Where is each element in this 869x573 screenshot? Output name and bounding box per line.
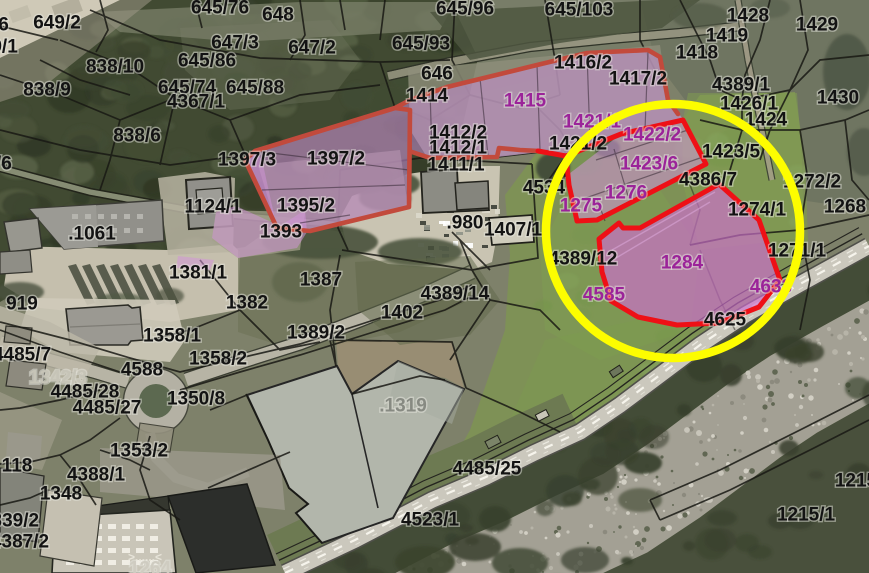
svg-text:1276: 1276 [605,183,647,204]
svg-text:.980: .980 [447,213,484,234]
svg-text:836/6: 836/6 [0,154,12,175]
svg-text:1414: 1414 [406,86,449,107]
svg-text:649/2: 649/2 [33,13,81,34]
svg-text:1417/2: 1417/2 [609,69,667,90]
svg-text:.1061: .1061 [68,224,116,245]
svg-text:919: 919 [6,294,38,315]
svg-text:1402: 1402 [381,303,423,324]
svg-text:1416/2: 1416/2 [554,53,612,74]
svg-text:645/93: 645/93 [392,34,450,55]
svg-text:1428: 1428 [727,6,769,27]
svg-text:4388/1: 4388/1 [67,465,126,486]
svg-text:645/88: 645/88 [226,78,284,99]
svg-text:1422/2: 1422/2 [623,125,681,146]
svg-text:4485/27: 4485/27 [73,398,142,419]
svg-text:4485/25: 4485/25 [453,459,522,480]
svg-text:1275: 1275 [560,196,603,217]
svg-text:1393: 1393 [260,222,302,243]
svg-text:1342/3: 1342/3 [29,368,87,389]
svg-text:1353/2: 1353/2 [110,441,168,462]
svg-text:1348: 1348 [40,484,82,505]
svg-text:1215: 1215 [835,471,869,492]
svg-text:1430: 1430 [817,88,859,109]
svg-text:1429: 1429 [796,15,838,36]
svg-text:836: 836 [0,15,9,36]
svg-text:4389/12: 4389/12 [549,249,618,270]
svg-text:838/6: 838/6 [113,126,161,147]
svg-text:1268: 1268 [824,197,866,218]
svg-text:4485/7: 4485/7 [0,345,51,366]
svg-text:1358/2: 1358/2 [189,349,247,370]
svg-text:1382: 1382 [226,293,268,314]
svg-text:1284: 1284 [661,253,704,274]
svg-text:118: 118 [2,456,33,477]
svg-text:4588: 4588 [121,360,163,381]
svg-text:4523/1: 4523/1 [401,510,460,531]
svg-text:838/10: 838/10 [86,57,144,78]
svg-text:646: 646 [421,64,453,85]
svg-text:1418: 1418 [676,43,718,64]
svg-text:1411/1: 1411/1 [427,155,484,176]
svg-text:1381/1: 1381/1 [169,263,228,284]
svg-text:1389/2: 1389/2 [287,323,345,344]
svg-text:645/76: 645/76 [191,0,249,19]
svg-text:645/103: 645/103 [545,0,614,21]
svg-text:1423/6: 1423/6 [620,154,678,175]
svg-text:1274/1: 1274/1 [728,200,787,221]
svg-text:4339/2: 4339/2 [0,511,39,532]
svg-text:4387/2: 4387/2 [0,532,49,553]
svg-text:1264: 1264 [129,559,172,573]
svg-text:1415: 1415 [504,91,547,112]
svg-text:1215/1: 1215/1 [777,505,836,526]
svg-text:4386/7: 4386/7 [679,170,737,191]
svg-text:647/2: 647/2 [288,38,336,59]
svg-text:649/1: 649/1 [0,37,18,58]
svg-text:1358/1: 1358/1 [143,326,202,347]
svg-text:1350/8: 1350/8 [167,389,225,410]
svg-text:4389/1: 4389/1 [712,75,771,96]
svg-text:1397/2: 1397/2 [307,149,365,170]
svg-text:838/9: 838/9 [23,80,71,101]
svg-text:.1319: .1319 [379,396,427,417]
svg-text:1407/1: 1407/1 [484,220,543,241]
svg-text:4625: 4625 [704,310,747,331]
svg-text:645/86: 645/86 [178,51,236,72]
svg-text:4367/1: 4367/1 [167,92,226,113]
svg-text:1423/5: 1423/5 [702,142,761,163]
svg-text:1395/2: 1395/2 [277,196,335,217]
svg-text:1397/3: 1397/3 [218,150,276,171]
svg-text:645/96: 645/96 [436,0,494,20]
svg-text:4585: 4585 [583,285,626,306]
svg-text:4389/14: 4389/14 [421,284,490,305]
svg-text:1387: 1387 [300,270,342,291]
svg-text:648: 648 [262,5,294,26]
svg-text:1124/1: 1124/1 [184,197,241,218]
